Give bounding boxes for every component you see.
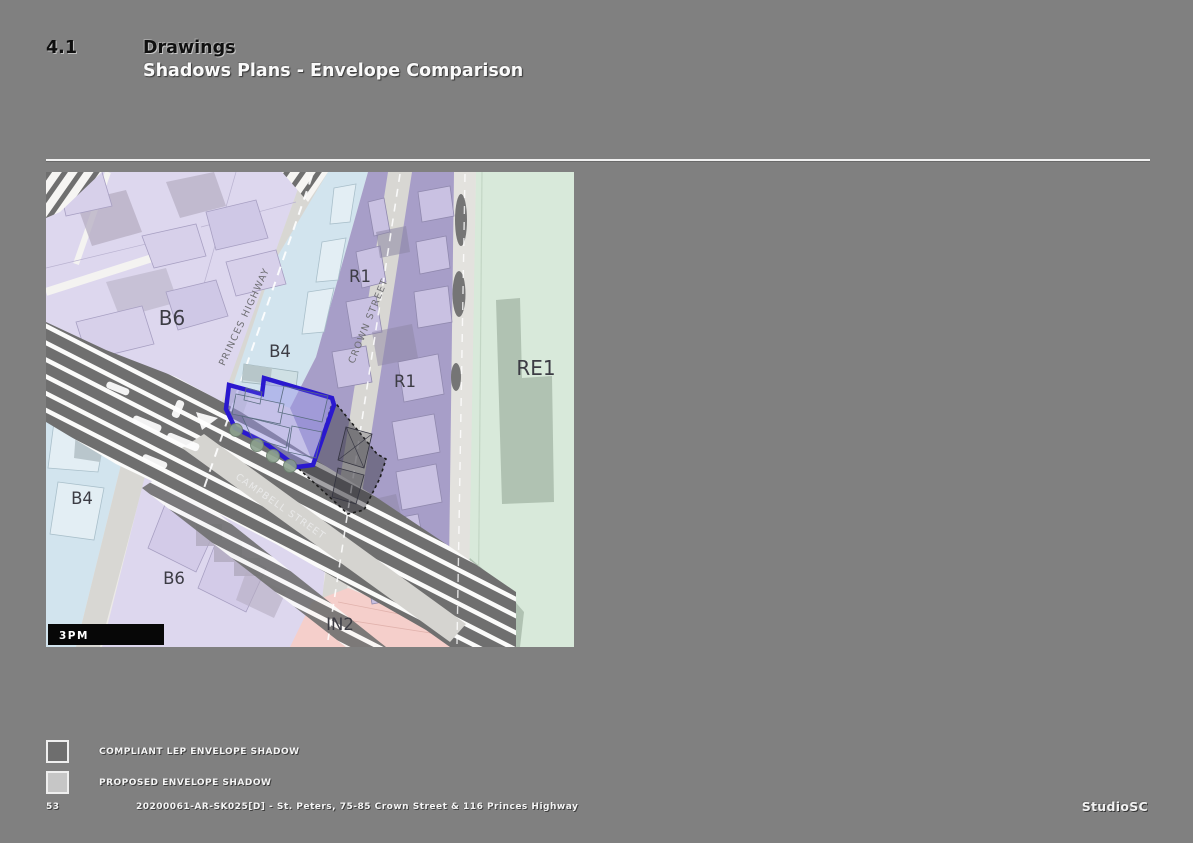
page-subtitle: Shadows Plans - Envelope Comparison [143,61,523,81]
drawing-sheet: 4.1 Drawings Shadows Plans - Envelope Co… [0,0,1193,843]
page-title: Drawings [143,38,236,58]
zone-label-r1-mid: R1 [394,372,416,391]
legend-swatch-proposed [46,771,69,794]
legend-swatch-compliant [46,740,69,763]
section-number: 4.1 [46,38,77,58]
zone-label-r1-top: R1 [349,267,371,286]
legend-item-proposed: PROPOSED ENVELOPE SHADOW [46,770,300,795]
shadow-plan-map: B6 B4 R1 R1 RE1 B4 B6 IN2 PRINCES HIGHWA… [46,172,574,647]
zone-label-in2: IN2 [326,615,354,634]
zone-label-b6-top: B6 [159,306,185,330]
zone-label-b6-bottom: B6 [163,569,185,588]
legend-label-proposed: PROPOSED ENVELOPE SHADOW [99,778,271,788]
time-label-box: 3PM [48,624,164,645]
legend: COMPLIANT LEP ENVELOPE SHADOW PROPOSED E… [46,739,300,801]
legend-label-compliant: COMPLIANT LEP ENVELOPE SHADOW [99,747,300,757]
zone-label-re1: RE1 [516,356,555,380]
zone-label-b4-left: B4 [71,489,93,508]
shadow-plan-svg: B6 B4 R1 R1 RE1 B4 B6 IN2 PRINCES HIGHWA… [46,172,574,647]
page-number: 53 [46,802,60,812]
zone-label-b4-top: B4 [269,342,291,361]
document-reference: 20200061-AR-SK025[D] - St. Peters, 75-85… [136,802,578,812]
legend-item-compliant: COMPLIANT LEP ENVELOPE SHADOW [46,739,300,764]
header-divider [46,159,1150,161]
time-label: 3PM [59,630,89,642]
studio-logo: StudioSC [1082,799,1148,814]
